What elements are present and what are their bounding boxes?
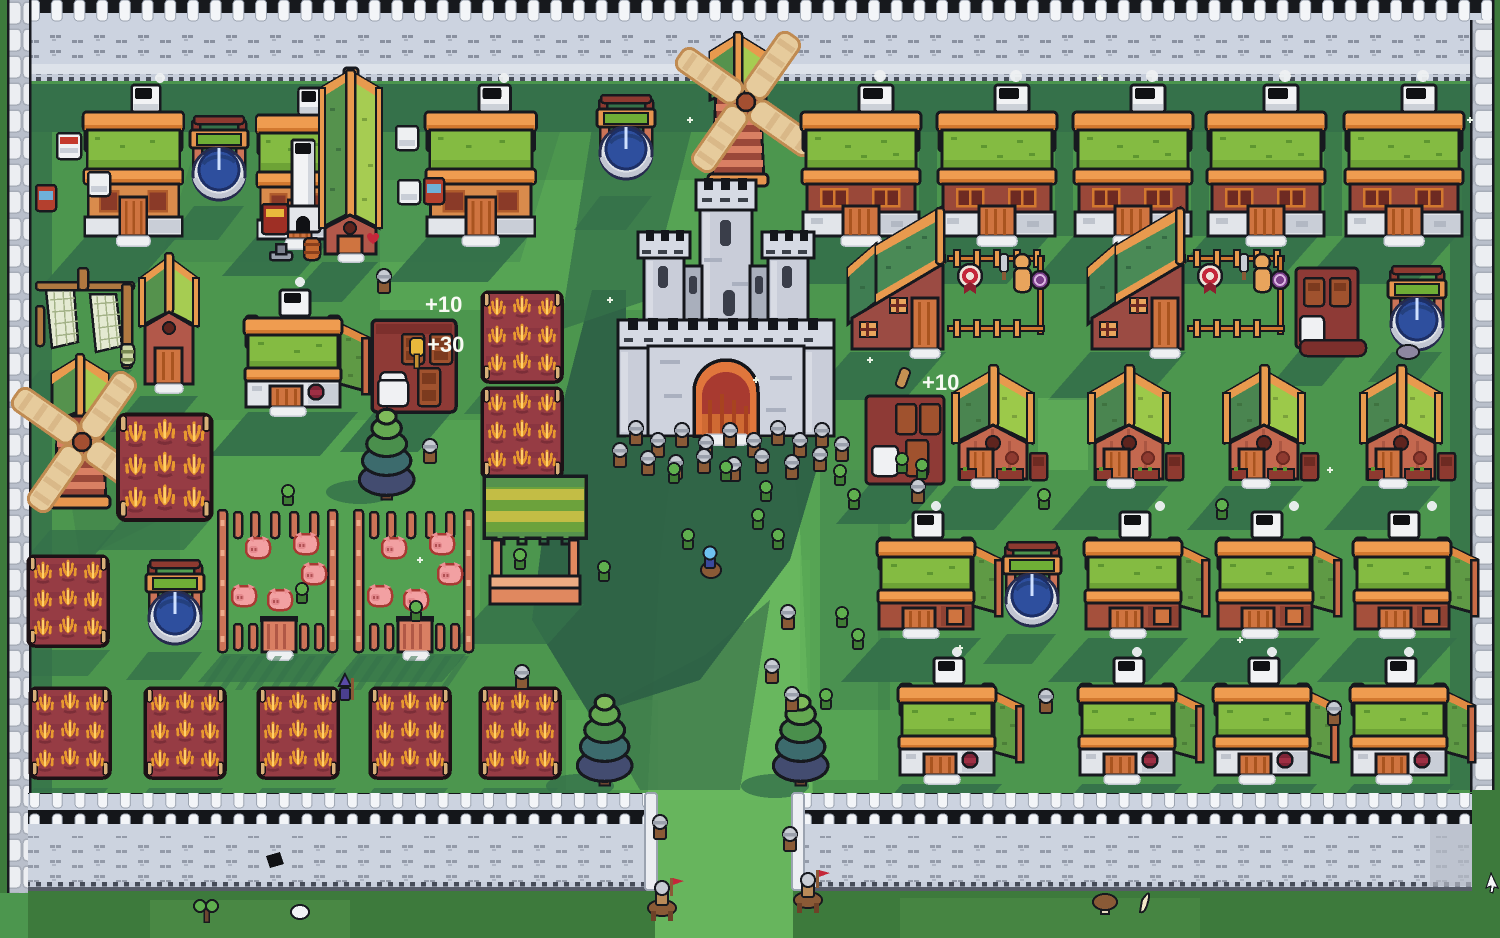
svg-text:+30: +30 xyxy=(427,332,464,357)
svg-text:+10: +10 xyxy=(922,370,959,395)
svg-text:+10: +10 xyxy=(425,292,462,317)
